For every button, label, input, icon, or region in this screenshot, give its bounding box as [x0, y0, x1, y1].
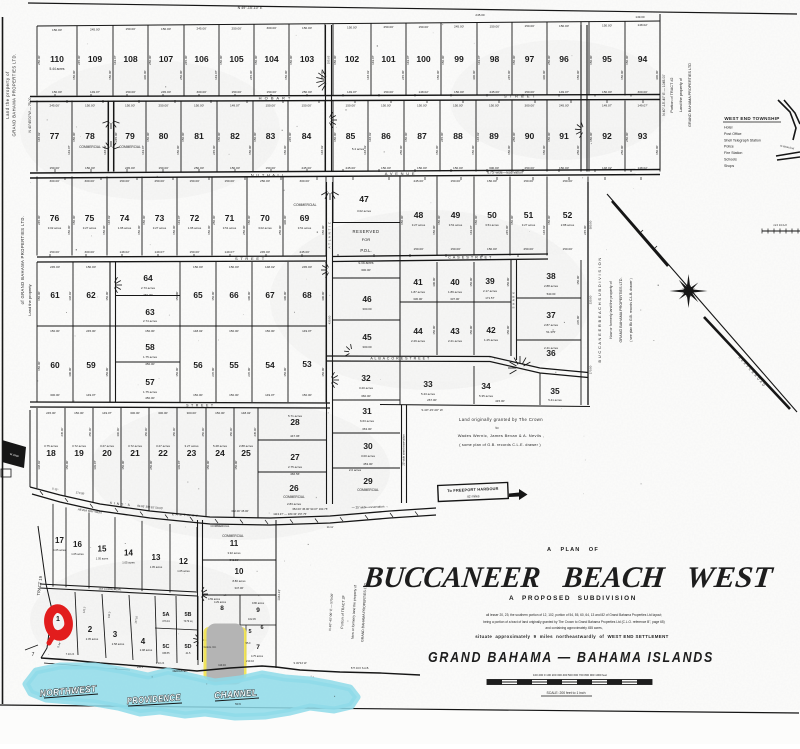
svg-text:24: 24 — [215, 448, 225, 458]
svg-text:150.00': 150.00' — [589, 132, 593, 142]
svg-text:149.07': 149.07' — [637, 104, 647, 108]
svg-text:1ST COMMERCIAL: 1ST COMMERCIAL — [98, 587, 122, 592]
svg-text:150.00': 150.00' — [469, 325, 473, 335]
svg-text:S 49°44' W: S 49°44' W — [294, 661, 307, 665]
svg-text:148.02': 148.02' — [103, 145, 107, 155]
svg-text:27: 27 — [290, 452, 300, 462]
svg-text:77: 77 — [50, 131, 60, 141]
svg-text:5.41 acres: 5.41 acres — [548, 398, 562, 402]
svg-text:Land originally granted by: Land originally granted by The Crown — [459, 417, 543, 422]
svg-text:57: 57 — [145, 377, 155, 387]
svg-text:150.00': 150.00' — [655, 145, 659, 155]
svg-text:20: 20 — [102, 448, 112, 458]
svg-text:300.00': 300.00' — [655, 70, 659, 80]
svg-text:150.00': 150.00' — [211, 291, 215, 301]
svg-text:245.00': 245.00' — [125, 166, 135, 170]
svg-text:150.00': 150.00' — [523, 179, 533, 183]
svg-text:3.27 acres: 3.27 acres — [100, 444, 115, 448]
svg-text:3.27 acres: 3.27 acres — [184, 444, 199, 448]
svg-text:COMMERCIAL: COMMERCIAL — [119, 145, 141, 149]
svg-text:150.00': 150.00' — [413, 247, 423, 251]
svg-text:Schools: Schools — [724, 158, 737, 162]
svg-text:30: 30 — [363, 441, 373, 451]
svg-text:250.00': 250.00' — [242, 225, 246, 235]
svg-text:2.88 acres: 2.88 acres — [561, 223, 575, 227]
svg-text:363.00': 363.00' — [362, 427, 372, 431]
svg-text:Wades Wernic, James Bevan: Wades Wernic, James Bevan & A. Nevils , — [458, 433, 545, 438]
svg-text:2.87 acres: 2.87 acres — [544, 323, 559, 327]
svg-text:150.00': 150.00' — [418, 25, 428, 29]
svg-text:92: 92 — [602, 131, 612, 141]
svg-text:210.16: 210.16 — [246, 659, 254, 663]
svg-text:250.00': 250.00' — [399, 145, 403, 155]
svg-text:150.00': 150.00' — [432, 225, 436, 235]
svg-text:352.00' 45.00' 93.07' 160.75: 352.00' 45.00' 93.07' 160.75' — [292, 507, 328, 511]
svg-text:150.00': 150.00' — [450, 247, 460, 251]
svg-text:245.00': 245.00' — [196, 27, 206, 31]
svg-text:50 ft: 50 ft — [235, 702, 241, 706]
svg-text:150.00': 150.00' — [145, 329, 155, 333]
svg-text:4: 4 — [141, 637, 146, 646]
svg-text:RESERVED: RESERVED — [353, 229, 380, 234]
svg-text:245.00': 245.00' — [507, 70, 511, 80]
svg-text:18: 18 — [46, 448, 56, 458]
svg-text:22: 22 — [158, 448, 168, 458]
svg-text:300.00': 300.00' — [84, 250, 94, 254]
svg-text:149.07': 149.07' — [224, 250, 234, 254]
svg-text:245.00': 245.00' — [46, 411, 56, 415]
svg-text:250.00': 250.00' — [523, 247, 533, 251]
svg-text:150.00': 150.00' — [547, 215, 551, 225]
svg-text:150.00': 150.00' — [137, 225, 141, 235]
svg-text:59: 59 — [86, 360, 96, 370]
svg-text:150.00': 150.00' — [620, 70, 624, 80]
svg-text:250.00': 250.00' — [149, 460, 153, 470]
svg-text:149.07': 149.07' — [406, 55, 410, 65]
svg-text:300.00: 300.00 — [362, 345, 372, 349]
svg-text:94: 94 — [638, 54, 648, 64]
svg-text:150.00': 150.00' — [562, 247, 572, 251]
svg-text:250.00': 250.00' — [547, 55, 551, 65]
svg-text:148.02': 148.02' — [320, 145, 324, 155]
svg-text:148.02': 148.02' — [637, 23, 647, 27]
svg-text:150.00': 150.00' — [333, 132, 337, 142]
svg-text:300.00': 300.00' — [49, 179, 59, 183]
svg-text:150.00': 150.00' — [37, 291, 41, 301]
svg-text:150.00': 150.00' — [219, 55, 223, 65]
svg-text:300.00': 300.00' — [143, 70, 147, 80]
svg-text:56: 56 — [193, 360, 203, 370]
svg-text:73: 73 — [155, 213, 165, 223]
svg-text:mi 0 1/4 1/2: mi 0 1/4 1/2 — [773, 223, 787, 227]
svg-text:245.00': 245.00' — [77, 55, 81, 65]
svg-text:150.00': 150.00' — [65, 460, 69, 470]
svg-text:S T R E E T: S T R E E T — [186, 404, 214, 408]
svg-text:245.00': 245.00' — [505, 225, 509, 235]
svg-text:360.00': 360.00' — [361, 394, 371, 398]
svg-text:39: 39 — [485, 276, 495, 286]
svg-text:150.00': 150.00' — [625, 55, 629, 65]
svg-text:540.00: 540.00 — [547, 292, 556, 296]
svg-text:150.00': 150.00' — [265, 104, 275, 108]
svg-text:149.07': 149.07' — [67, 145, 71, 155]
svg-text:453.00': 453.00' — [363, 462, 373, 466]
svg-text:245.00': 245.00' — [60, 427, 64, 437]
svg-text:51: 51 — [524, 210, 534, 220]
svg-text:3.02 acres: 3.02 acres — [258, 226, 272, 230]
svg-text:2.41 acres: 2.41 acres — [544, 346, 559, 350]
svg-text:580.00: 580.00 — [589, 220, 593, 229]
svg-text:330.00': 330.00' — [413, 297, 423, 301]
svg-text:250.00': 250.00' — [148, 55, 152, 65]
svg-text:245.00': 245.00' — [90, 28, 100, 32]
svg-text:148.02': 148.02' — [476, 132, 480, 142]
svg-text:46: 46 — [362, 294, 372, 304]
svg-text:473.41: 473.41 — [162, 620, 170, 623]
svg-text:3.27 acres: 3.27 acres — [522, 223, 536, 227]
svg-text:S T R E E T: S T R E E T — [504, 94, 536, 99]
svg-text:300.00': 300.00' — [84, 179, 94, 183]
svg-text:245.00': 245.00' — [114, 132, 118, 142]
svg-text:64: 64 — [143, 273, 153, 283]
svg-text:150.00': 150.00' — [417, 166, 427, 170]
svg-text:148.02': 148.02' — [37, 132, 41, 142]
svg-text:31: 31 — [362, 406, 372, 416]
svg-text:300.00': 300.00' — [283, 291, 287, 301]
svg-text:67: 67 — [265, 290, 275, 300]
svg-text:150.00': 150.00' — [453, 166, 463, 170]
svg-text:situate approximately 9 mil: situate approximately 9 miles northeastw… — [475, 634, 669, 639]
svg-text:1.95 acres: 1.95 acres — [188, 226, 202, 230]
svg-text:302.00' 45.00': 302.00' 45.00' — [231, 509, 249, 513]
svg-text:150.00': 150.00' — [512, 55, 516, 65]
svg-text:N 40°45'00"W — 75.00: N 40°45'00"W — 75.00 — [28, 97, 32, 132]
svg-text:8.80 acres: 8.80 acres — [232, 579, 246, 583]
svg-text:300.00': 300.00' — [266, 26, 276, 30]
svg-text:S T R E E T: S T R E E T — [235, 256, 265, 261]
svg-text:267.00': 267.00' — [427, 398, 437, 402]
svg-text:300.00': 300.00' — [637, 90, 647, 94]
svg-text:150.00': 150.00' — [85, 166, 95, 170]
svg-text:106: 106 — [194, 54, 209, 64]
svg-text:245.00': 245.00' — [37, 215, 41, 225]
svg-text:300.00': 300.00' — [158, 411, 168, 415]
svg-text:150.00': 150.00' — [176, 145, 180, 155]
svg-text:450.00': 450.00' — [145, 396, 155, 400]
svg-text:1: 1 — [56, 616, 60, 623]
svg-text:14: 14 — [124, 549, 133, 558]
svg-text:7479 sq: 7479 sq — [184, 620, 194, 623]
svg-text:150.00': 150.00' — [172, 225, 176, 235]
svg-text:1.87 acres: 1.87 acres — [411, 290, 426, 294]
svg-text:10: 10 — [235, 567, 244, 576]
svg-text:DB 85: DB 85 — [163, 652, 171, 655]
svg-text:FOR: FOR — [362, 237, 371, 242]
svg-text:Fire Station: Fire Station — [724, 151, 742, 155]
svg-text:150.00': 150.00' — [381, 166, 391, 170]
svg-text:148.02': 148.02' — [542, 225, 546, 235]
svg-text:49: 49 — [451, 210, 461, 220]
svg-text:1.05 acres: 1.05 acres — [177, 569, 190, 573]
svg-text:250.00': 250.00' — [260, 179, 270, 183]
svg-text:150.00': 150.00' — [454, 90, 464, 94]
svg-text:6.75'-wide—reservation: 6.75'-wide—reservation — [487, 171, 523, 175]
svg-text:2.88 acres: 2.88 acres — [239, 444, 254, 448]
svg-text:50: 50 — [487, 210, 497, 220]
svg-text:of GRAND BAHAMA PROPERTI: of GRAND BAHAMA PROPERTIES LTD. — [20, 216, 25, 305]
svg-text:150.00': 150.00' — [105, 291, 109, 301]
svg-text:GRAND BAHAMA PROPERTIES LTD: GRAND BAHAMA PROPERTIES LTD. — [12, 54, 17, 137]
svg-text:150.00': 150.00' — [86, 265, 96, 269]
svg-text:5D: 5D — [184, 644, 191, 650]
svg-text:195.65: 195.65 — [327, 55, 331, 64]
svg-text:150.00': 150.00' — [302, 393, 312, 397]
svg-text:330.00: 330.00 — [589, 295, 593, 304]
svg-text:150.00': 150.00' — [524, 24, 534, 28]
svg-text:2.29 acres: 2.29 acres — [411, 339, 426, 343]
svg-text:COMMERCIAL: COMMERCIAL — [357, 488, 379, 492]
svg-text:N U T H A L L: N U T H A L L — [251, 173, 286, 178]
svg-text:5.44 acres: 5.44 acres — [50, 67, 65, 71]
svg-text:N 40°-15'-40" E — 1045.00': N 40°-15'-40" E — 1045.00' — [662, 74, 666, 116]
svg-text:A PLAN OF: A PLAN OF — [547, 547, 599, 553]
svg-text:150.00': 150.00' — [248, 145, 252, 155]
svg-text:150.00': 150.00' — [207, 225, 211, 235]
svg-text:53: 53 — [302, 359, 312, 369]
svg-text:148.02': 148.02' — [193, 329, 203, 333]
svg-text:Land the property of: Land the property of — [5, 71, 10, 119]
svg-text:149.07': 149.07' — [141, 145, 145, 155]
svg-text:300.00': 300.00' — [321, 291, 325, 301]
svg-text:103: 103 — [300, 54, 315, 64]
svg-text:29: 29 — [363, 476, 373, 486]
svg-text:149.07': 149.07' — [302, 329, 312, 333]
svg-text:150.00': 150.00' — [559, 24, 569, 28]
svg-text:25: 25 — [241, 448, 251, 458]
svg-text:7.10 ch: 7.10 ch — [66, 652, 75, 656]
svg-text:150.00': 150.00' — [347, 26, 357, 30]
svg-text:171.57': 171.57' — [485, 296, 495, 300]
svg-text:99: 99 — [454, 54, 464, 64]
svg-text:108: 108 — [123, 54, 138, 64]
svg-text:47: 47 — [359, 194, 369, 204]
svg-text:150.00': 150.00' — [144, 427, 148, 437]
svg-text:88: 88 — [453, 131, 463, 141]
svg-text:245.00': 245.00' — [559, 104, 569, 108]
svg-text:2.83 acres: 2.83 acres — [287, 502, 302, 506]
svg-text:150.00': 150.00' — [125, 104, 135, 108]
svg-text:149.07': 149.07' — [86, 393, 96, 397]
svg-text:2.58 acres: 2.58 acres — [112, 642, 125, 646]
svg-text:250.00': 250.00' — [201, 427, 205, 437]
svg-text:102: 102 — [345, 54, 360, 64]
svg-text:87: 87 — [417, 131, 427, 141]
svg-text:COMMERCIAL: COMMERCIAL — [283, 495, 305, 499]
svg-text:150.00': 150.00' — [489, 104, 499, 108]
svg-text:5C: 5C — [162, 644, 169, 650]
svg-text:A V E N U E: A V E N U E — [385, 171, 416, 176]
svg-text:91: 91 — [559, 131, 569, 141]
svg-text:150.00': 150.00' — [487, 179, 497, 183]
svg-text:86: 86 — [381, 131, 391, 141]
svg-text:3.27 acres: 3.27 acres — [156, 444, 171, 448]
svg-text:150.00': 150.00' — [121, 460, 125, 470]
svg-text:109: 109 — [88, 54, 103, 64]
svg-text:577.16 ft S.A.B.: 577.16 ft S.A.B. — [351, 666, 369, 670]
svg-text:149.07': 149.07' — [371, 55, 375, 65]
svg-text:Portion of TRACT #2: Portion of TRACT #2 — [670, 77, 674, 112]
svg-text:149.07': 149.07' — [477, 55, 481, 65]
svg-text:150.00': 150.00' — [474, 215, 478, 225]
svg-text:98: 98 — [490, 54, 500, 64]
svg-text:COMMERCIAL: COMMERCIAL — [79, 145, 101, 149]
svg-text:1.89 acres: 1.89 acres — [448, 290, 463, 294]
svg-text:51.375': 51.375' — [546, 330, 556, 334]
svg-text:250.00': 250.00' — [212, 215, 216, 225]
svg-text:12: 12 — [179, 557, 188, 566]
svg-text:466.56': 466.56' — [290, 472, 300, 476]
svg-text:150.00': 150.00' — [435, 145, 439, 155]
svg-text:150.00': 150.00' — [52, 28, 62, 32]
svg-text:2.0 acres: 2.0 acres — [349, 468, 362, 472]
svg-text:N 49°-15'-10" E: N 49°-15'-10" E — [238, 6, 263, 10]
svg-text:2.74 acres: 2.74 acres — [143, 319, 158, 323]
svg-text:2.05 acres: 2.05 acres — [86, 637, 99, 641]
svg-text:150.00': 150.00' — [507, 145, 511, 155]
svg-text:149.07': 149.07' — [102, 411, 112, 415]
svg-text:Shell Telegraph Station: Shell Telegraph Station — [724, 138, 761, 142]
svg-text:BEACH: BEACH — [561, 560, 668, 594]
svg-text:149.07': 149.07' — [347, 90, 357, 94]
svg-text:( see plan Bk G.B. records: ( see plan Bk G.B. records C.L.B. drawer… — [629, 278, 633, 342]
svg-text:45: 45 — [362, 332, 372, 342]
svg-text:54: 54 — [265, 360, 275, 370]
svg-text:110.16: 110.16 — [218, 664, 226, 667]
svg-text:150.00': 150.00' — [381, 104, 391, 108]
svg-text:150.00': 150.00' — [471, 145, 475, 155]
svg-text:A PROPOSED SUBDIVISION: A PROPOSED SUBDIVISION — [509, 595, 637, 602]
svg-text:300.00': 300.00' — [472, 70, 476, 80]
svg-text:69: 69 — [300, 213, 310, 223]
svg-text:2.88 acres: 2.88 acres — [544, 284, 559, 288]
svg-text:Post Office: Post Office — [724, 132, 742, 136]
svg-text:3.00 acres: 3.00 acres — [361, 454, 376, 458]
svg-text:1.05 acres: 1.05 acres — [150, 565, 163, 569]
svg-text:3.51 acres: 3.51 acres — [485, 223, 499, 227]
svg-text:150.00': 150.00' — [105, 367, 109, 377]
svg-text:430.00: 430.00 — [328, 315, 332, 324]
svg-text:3.72 acres: 3.72 acres — [72, 444, 87, 448]
svg-text:245.00': 245.00' — [489, 90, 499, 94]
svg-text:148.02': 148.02' — [119, 250, 129, 254]
svg-text:P.O.L.: P.O.L. — [360, 248, 371, 253]
svg-text:5B: 5B — [184, 612, 191, 618]
svg-text:250.00': 250.00' — [524, 166, 534, 170]
svg-text:150.00': 150.00' — [72, 132, 76, 142]
svg-text:150.00': 150.00' — [383, 90, 393, 94]
svg-text:150.00': 150.00' — [85, 104, 95, 108]
svg-text:245.00': 245.00' — [288, 132, 292, 142]
svg-text:Shops: Shops — [724, 164, 734, 168]
svg-text:149.07': 149.07' — [113, 55, 117, 65]
svg-text:150.00': 150.00' — [432, 325, 436, 335]
svg-text:85: 85 — [346, 131, 356, 141]
svg-text:245.00': 245.00' — [184, 55, 188, 65]
svg-text:245.00': 245.00' — [253, 427, 257, 437]
svg-text:to: to — [496, 426, 499, 430]
svg-text:150.00': 150.00' — [231, 90, 241, 94]
svg-text:150.00': 150.00' — [283, 145, 287, 155]
svg-text:42 miles: 42 miles — [467, 494, 480, 499]
svg-text:101: 101 — [381, 54, 396, 64]
svg-text:150.00': 150.00' — [175, 367, 179, 377]
svg-text:26: 26 — [289, 483, 299, 493]
svg-text:71: 71 — [225, 213, 235, 223]
svg-text:250.00': 250.00' — [512, 132, 516, 142]
svg-text:4.75 acres: 4.75 acres — [251, 654, 264, 658]
svg-text:150.00': 150.00' — [206, 460, 210, 470]
svg-text:2: 2 — [88, 625, 93, 634]
svg-text:150.00': 150.00' — [224, 179, 234, 183]
svg-text:90: 90 — [525, 131, 535, 141]
svg-text:60: 60 — [50, 360, 60, 370]
svg-text:3.02 acres: 3.02 acres — [48, 226, 62, 230]
svg-text:150.00': 150.00' — [441, 55, 445, 65]
svg-text:17: 17 — [55, 536, 64, 545]
svg-text:300.00': 300.00' — [130, 411, 140, 415]
svg-text:Comm. Ctr.: Comm. Ctr. — [204, 646, 217, 649]
svg-text:1.05 acres: 1.05 acres — [122, 561, 135, 565]
svg-text:5: 5 — [248, 629, 251, 635]
svg-text:150.00': 150.00' — [189, 179, 199, 183]
svg-text:3.51 acres: 3.51 acres — [449, 223, 463, 227]
svg-text:21: 21 — [130, 448, 140, 458]
svg-text:245.00': 245.00' — [583, 225, 587, 235]
svg-text:5.4 acres: 5.4 acres — [352, 147, 365, 151]
svg-text:148.02': 148.02' — [265, 265, 275, 269]
svg-text:Land the property of: Land the property of — [679, 77, 683, 112]
svg-text:52: 52 — [563, 210, 573, 220]
svg-text:104: 104 — [264, 54, 279, 64]
svg-text:150.00': 150.00' — [49, 250, 59, 254]
svg-text:150.00': 150.00' — [119, 179, 129, 183]
svg-text:76: 76 — [50, 213, 60, 223]
svg-text:150.00': 150.00' — [453, 104, 463, 108]
svg-text:245.00': 245.00' — [260, 250, 270, 254]
svg-text:GRAND BAHAMA PROPERTIES LTD: GRAND BAHAMA PROPERTIES LTD — [688, 63, 692, 127]
svg-text:148.02': 148.02' — [241, 411, 251, 415]
svg-text:150.00': 150.00' — [229, 427, 233, 437]
svg-text:150.00': 150.00' — [158, 166, 168, 170]
svg-text:149.07': 149.07' — [177, 215, 181, 225]
svg-text:245.00': 245.00' — [440, 132, 444, 142]
svg-text:300.00: 300.00 — [362, 307, 372, 311]
svg-text:150.00': 150.00' — [576, 70, 580, 80]
svg-text:250.00': 250.00' — [231, 26, 241, 30]
svg-text:300.00': 300.00' — [187, 411, 197, 415]
svg-text:150.00': 150.00' — [142, 215, 146, 225]
svg-text:148.02': 148.02' — [68, 291, 72, 301]
svg-text:33: 33 — [423, 379, 433, 389]
svg-text:B U C C A N E E R B E A C: B U C C A N E E R B E A C H S U B D I V … — [597, 257, 602, 362]
svg-text:148.02': 148.02' — [37, 460, 41, 470]
svg-text:149.07': 149.07' — [177, 460, 181, 470]
svg-text:250.00': 250.00' — [383, 25, 393, 29]
svg-text:97: 97 — [525, 54, 535, 64]
svg-text:148.02': 148.02' — [418, 90, 428, 94]
svg-text:( some plan of G.B. record: ( some plan of G.B. records C.L.E. drawe… — [459, 443, 541, 447]
svg-text:3.10 ch: 3.10 ch — [156, 661, 165, 665]
